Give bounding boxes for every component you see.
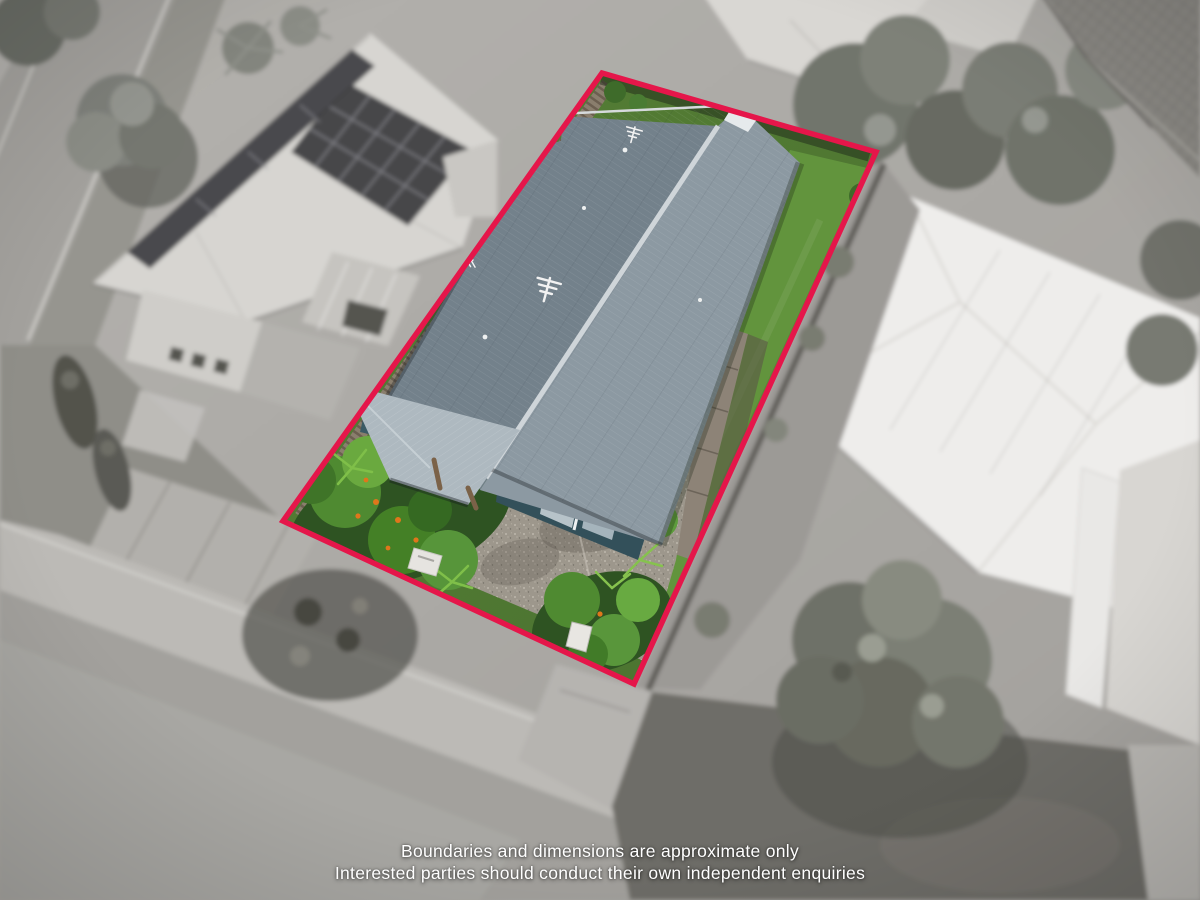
aerial-photo: Boundaries and dimensions are approximat… xyxy=(0,0,1200,900)
vignette xyxy=(0,0,1200,900)
scene-canvas xyxy=(0,0,1200,900)
